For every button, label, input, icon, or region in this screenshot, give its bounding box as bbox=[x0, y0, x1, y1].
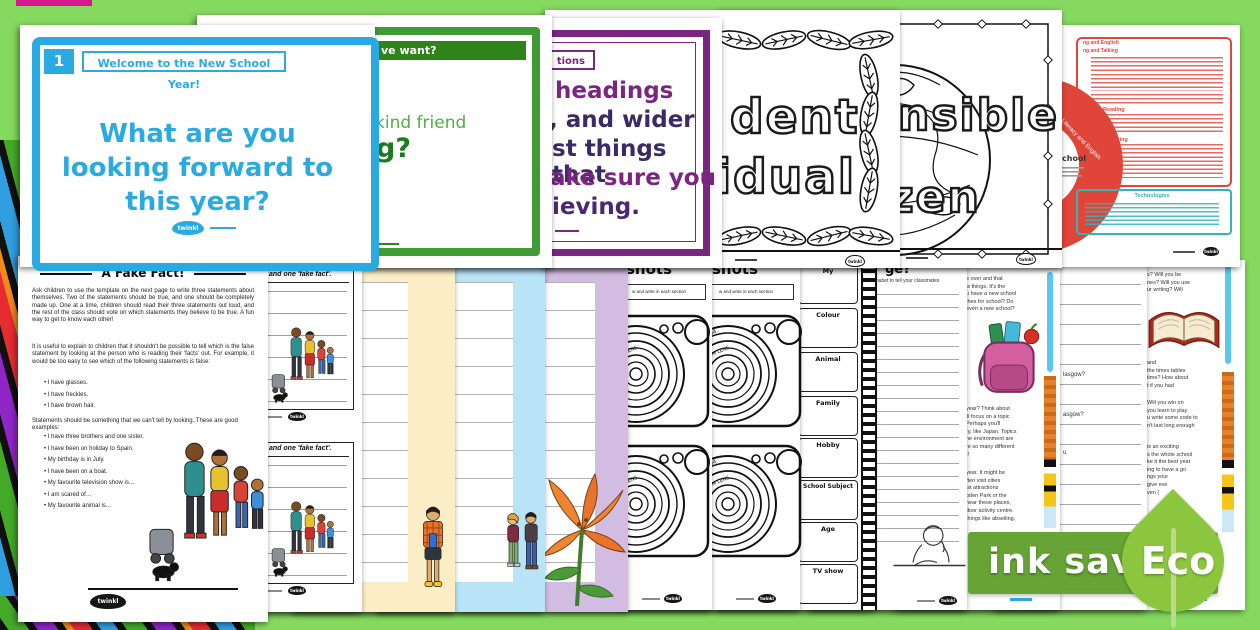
filmstrip-box-colour: Colour bbox=[798, 308, 858, 348]
twinkl-logo: twinkl bbox=[939, 596, 957, 605]
instructions-line: ieving. bbox=[552, 194, 640, 220]
fake-fact-paragraph-3: Statements should be something that we c… bbox=[32, 418, 254, 433]
footer-url-mark bbox=[642, 598, 660, 600]
newyear-paragraph-1: e over and thatw things. It's theu have … bbox=[966, 276, 1054, 314]
micro-text-block bbox=[1085, 203, 1219, 225]
twinkl-logo: twinkl bbox=[1016, 253, 1036, 265]
family-group-illustration bbox=[148, 436, 266, 584]
highlight-strip bbox=[1047, 272, 1053, 372]
svg-text:chool: chool bbox=[1062, 154, 1086, 163]
green-text-fragment-1: kind friend bbox=[375, 113, 466, 133]
twinkl-logo: twinkl bbox=[288, 412, 306, 421]
twinkl-logo: twinkl bbox=[758, 594, 776, 603]
fake-fact-paragraph-2: It is useful to explain to children that… bbox=[32, 344, 254, 366]
teenagers-illustration bbox=[500, 472, 545, 608]
slide-header-box: Welcome to the New School Year! bbox=[82, 51, 286, 72]
filmstrip-box-school-subject: School Subject bbox=[798, 480, 858, 520]
backpack-illustration bbox=[970, 320, 1050, 400]
book-paragraph-1: s? Will you benes? Will you useur writin… bbox=[1147, 272, 1233, 295]
highlight-strip bbox=[1225, 264, 1231, 364]
curriculum-heading-1: ng and English bbox=[1083, 40, 1119, 46]
question-fragment: asgow? bbox=[1063, 412, 1084, 418]
open-book-illustration bbox=[1145, 302, 1223, 352]
tartan-pencil-strip bbox=[1222, 372, 1234, 532]
tartan-pencil-strip bbox=[1044, 376, 1056, 528]
twinkl-logo: twinkl bbox=[172, 221, 204, 235]
footer-rule bbox=[88, 588, 238, 590]
snapshots-instruction-box: w and write in each section bbox=[698, 284, 794, 300]
title-rule-right bbox=[194, 273, 246, 275]
citizen-word-fragment-1: nsible bbox=[898, 90, 1059, 141]
footer-url-mark bbox=[735, 259, 757, 261]
twinkl-logo: twinkl bbox=[845, 255, 865, 267]
alphabet-subtitle-fragment: lphabet to tell your classmates bbox=[872, 278, 964, 284]
question-fragment: u bbox=[1063, 450, 1066, 456]
slide-number-badge: 1 bbox=[44, 49, 74, 74]
footer-url-mark bbox=[736, 598, 754, 600]
twinkl-logo: twinkl bbox=[664, 594, 682, 603]
footer-url-mark bbox=[1173, 251, 1195, 253]
instructions-line: ake sure you bbox=[550, 165, 716, 191]
filmstrip-box-age: Age bbox=[798, 522, 858, 562]
instructions-line: headings bbox=[555, 78, 673, 104]
twinkl-logo: twinkl bbox=[1203, 247, 1219, 256]
question-fragment: lasgow? bbox=[1063, 372, 1085, 378]
family-group-illustration bbox=[271, 324, 335, 404]
film-sprocket-strip bbox=[861, 260, 877, 610]
micro-text-block bbox=[1091, 57, 1223, 71]
title-rule-left bbox=[40, 273, 92, 275]
slide-question-text: What are you looking forward to this yea… bbox=[50, 117, 345, 219]
filmstrip-box-animal: Animal bbox=[798, 352, 858, 392]
footer-url-mark bbox=[210, 227, 236, 229]
book-paragraph-2: andthe times tablestime? How aboutt if y… bbox=[1147, 360, 1233, 390]
eco-label: Eco bbox=[1138, 539, 1218, 583]
footer-url-mark bbox=[917, 600, 935, 602]
newyear-paragraph-3: year. It might beften visit citiesist at… bbox=[966, 470, 1054, 523]
fake-fact-paragraph-1: Ask children to use the template on the … bbox=[32, 288, 254, 324]
technologies-label: Technologies bbox=[1076, 193, 1228, 199]
individual-word-fragment-1: dent bbox=[730, 90, 859, 145]
teen-boy-illustration bbox=[411, 486, 455, 608]
fake-fact-looks-bullets: I have glasses. I have freckles. I have … bbox=[44, 378, 244, 413]
lily-flower-illustration bbox=[536, 468, 628, 608]
individual-word-fragment-2: idual bbox=[715, 150, 856, 205]
instructions-line: , and wider bbox=[549, 107, 695, 133]
curriculum-heading-2: ng and Talking bbox=[1083, 48, 1118, 54]
twinkl-logo: twinkl bbox=[90, 594, 126, 609]
worksheet-fake-fact-instructions: A Fake Fact! Ask children to use the tem… bbox=[18, 256, 268, 622]
top-left-magenta-stripe bbox=[16, 0, 92, 6]
newyear-paragraph-2: year? Think about'll focus on a topicPer… bbox=[966, 406, 1054, 459]
book-paragraph-3: Will you win onyou learn to playu write … bbox=[1147, 400, 1233, 430]
footer-logo-mark bbox=[555, 230, 579, 232]
filmstrip-box-family: Family bbox=[798, 396, 858, 436]
family-group-illustration bbox=[271, 498, 335, 578]
slide-welcome: 1 Welcome to the New School Year! What a… bbox=[20, 25, 375, 267]
citizen-word-fragment-2: zen bbox=[888, 172, 981, 223]
twinkl-resource-preview: s? Will you benes? Will you useur writin… bbox=[0, 0, 1260, 630]
child-at-desk-illustration bbox=[892, 515, 967, 577]
footer-logo-mark bbox=[1010, 598, 1032, 601]
green-text-fragment-2: g? bbox=[376, 133, 411, 164]
filmstrip-box-tv-show: TV show bbox=[798, 564, 858, 604]
footer-url-mark bbox=[906, 257, 928, 259]
filmstrip-box-my: My bbox=[798, 264, 858, 304]
book-paragraph-4: is an excitings the whole schoolke it th… bbox=[1147, 444, 1233, 497]
twinkl-logo: twinkl bbox=[288, 586, 306, 595]
filmstrip-box-hobby: Hobby bbox=[798, 438, 858, 478]
